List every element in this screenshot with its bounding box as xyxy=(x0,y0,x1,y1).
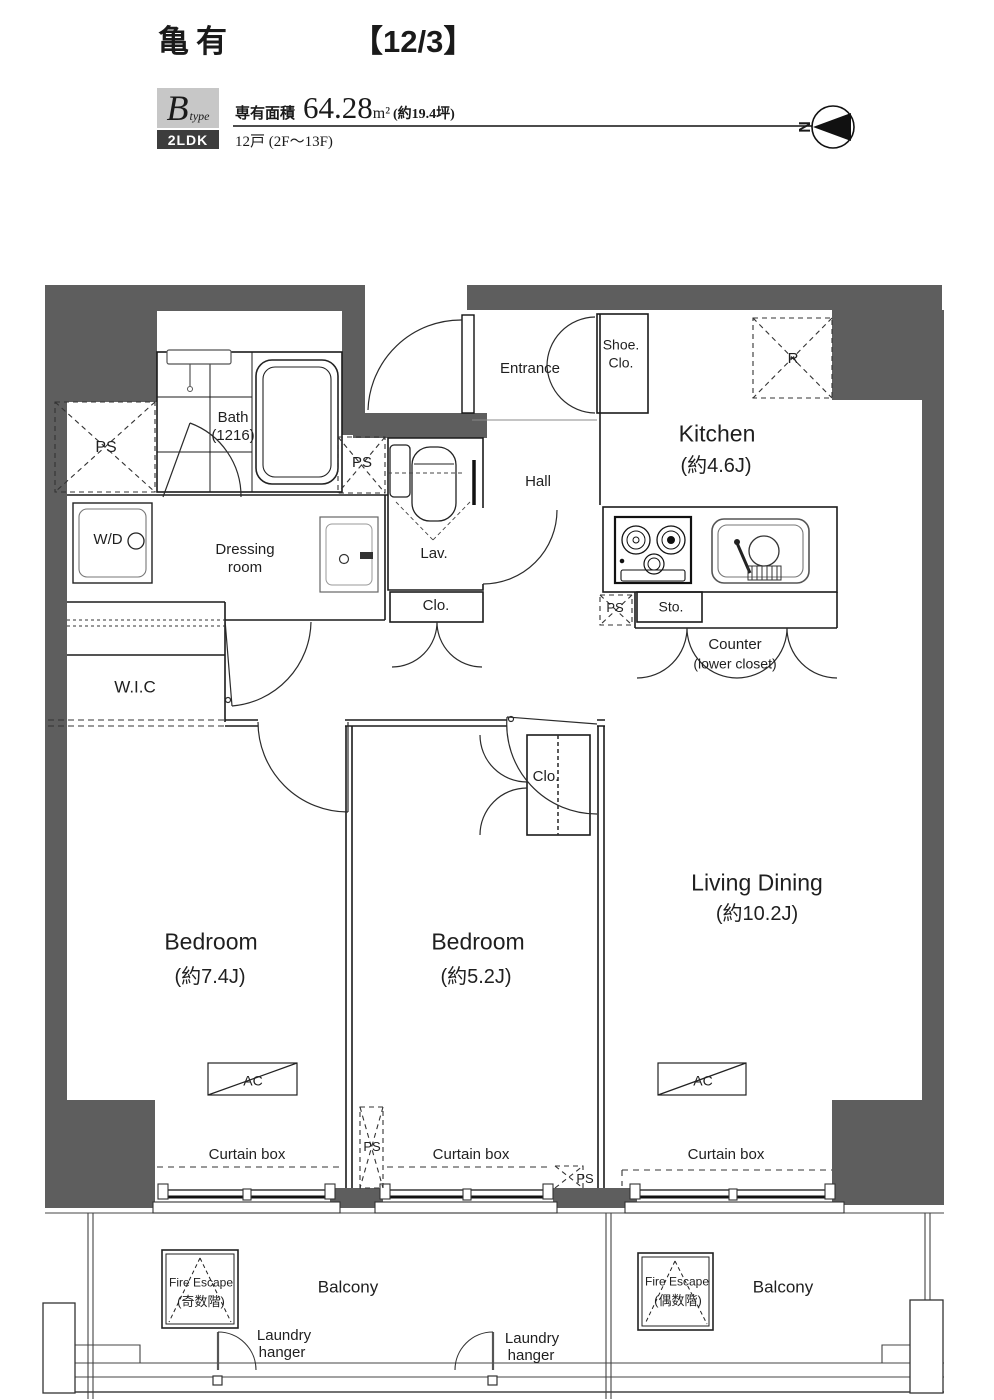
doors xyxy=(163,315,837,835)
area-label: 専有面積 xyxy=(235,102,295,123)
north-label: N xyxy=(797,121,815,133)
type-badge: B type xyxy=(157,88,219,128)
refrigerator-label: R xyxy=(788,351,799,368)
unit-count: 12戸 (2F～13F) xyxy=(235,130,333,151)
dressing-room-label2: room xyxy=(228,560,262,577)
ac-label-bedroom1: AC xyxy=(243,1073,262,1088)
kitchen-sink xyxy=(712,519,809,583)
fire-escape-even-label: (偶数階) xyxy=(654,1294,702,1308)
wic-label: W.I.C xyxy=(114,679,156,698)
hall-closet-label: Clo. xyxy=(423,598,450,615)
date-label: 【12/3】 xyxy=(352,16,474,61)
bedroom1-size-label: (約7.4J) xyxy=(174,966,245,988)
laundry-hanger-label-2b: hanger xyxy=(508,1348,555,1365)
kitchen-size-label: (約4.6J) xyxy=(680,455,751,477)
floorplan-drawing xyxy=(0,0,994,1400)
property-title: 亀有 xyxy=(158,16,234,61)
balcony-label-right: Balcony xyxy=(753,1279,813,1298)
counter-label2: (lower closet) xyxy=(693,656,776,671)
area-unit: m² xyxy=(373,105,390,123)
dressing-room-label: Dressing xyxy=(215,542,274,559)
ac-boxes xyxy=(208,1063,746,1095)
bath-label: Bath xyxy=(218,410,249,427)
area-line: 専有面積 64.28 m² (約19.4坪) xyxy=(235,92,455,123)
entrance-label: Entrance xyxy=(500,361,560,378)
floorplan-page: 亀有 【12/3】 B type 専有面積 64.28 m² (約19.4坪) … xyxy=(0,0,994,1400)
hall-label: Hall xyxy=(525,474,551,491)
type-suffix: type xyxy=(190,109,210,124)
storage-label: Sto. xyxy=(659,599,684,614)
bed2-closet-label: Clo. xyxy=(533,769,560,786)
shoe-closet-label2: Clo. xyxy=(609,355,634,370)
layout-badge: 2LDK xyxy=(157,130,219,149)
balcony-label-left: Balcony xyxy=(318,1279,378,1298)
ac-label-living: AC xyxy=(693,1073,712,1088)
bedroom2-label: Bedroom xyxy=(431,929,524,954)
structural-walls xyxy=(45,285,944,1208)
living-dining-size-label: (約10.2J) xyxy=(716,903,798,925)
bath-size-label: (1216) xyxy=(211,428,254,445)
bath-sink xyxy=(167,350,231,392)
bedroom1-label: Bedroom xyxy=(164,929,257,954)
ps-label-bath-left: PS xyxy=(95,439,116,457)
ps-label-kitchen: PS xyxy=(606,601,623,615)
living-dining-label: Living Dining xyxy=(691,870,823,895)
shoe-closet-label: Shoe. xyxy=(603,337,640,352)
type-letter: B xyxy=(167,90,189,126)
toilet xyxy=(388,445,474,540)
laundry-hanger-label-1b: hanger xyxy=(259,1345,306,1362)
north-compass-icon xyxy=(812,106,854,148)
curtain-box-label-3: Curtain box xyxy=(688,1147,765,1164)
laundry-hanger-label-1: Laundry xyxy=(257,1328,311,1345)
ps-label-bed2: PS xyxy=(576,1172,593,1186)
washer-dryer-label: W/D xyxy=(93,532,122,549)
kitchen-label: Kitchen xyxy=(679,421,756,446)
ps-label-bath-right: PS xyxy=(352,455,372,472)
fire-escape-label-left: Fire Escape xyxy=(169,1276,233,1289)
fire-escape-hatches xyxy=(162,1250,713,1330)
bathtub xyxy=(256,360,338,484)
bedroom2-size-label: (約5.2J) xyxy=(440,966,511,988)
ps-label-shaft: PS xyxy=(363,1140,380,1154)
fire-escape-label-right: Fire Escape xyxy=(645,1275,709,1288)
lavatory-label: Lav. xyxy=(420,546,447,563)
windows xyxy=(153,1184,844,1213)
curtain-box-label-2: Curtain box xyxy=(433,1147,510,1164)
stove xyxy=(615,517,691,583)
area-tsubo: (約19.4坪) xyxy=(393,103,455,123)
fire-escape-odd-label: (奇数階) xyxy=(177,1295,225,1309)
counter-label: Counter xyxy=(708,637,761,654)
vanity xyxy=(320,517,378,592)
curtain-box-label-1: Curtain box xyxy=(209,1147,286,1164)
laundry-hanger-label-2: Laundry xyxy=(505,1331,559,1348)
area-value: 64.28 xyxy=(303,92,373,123)
